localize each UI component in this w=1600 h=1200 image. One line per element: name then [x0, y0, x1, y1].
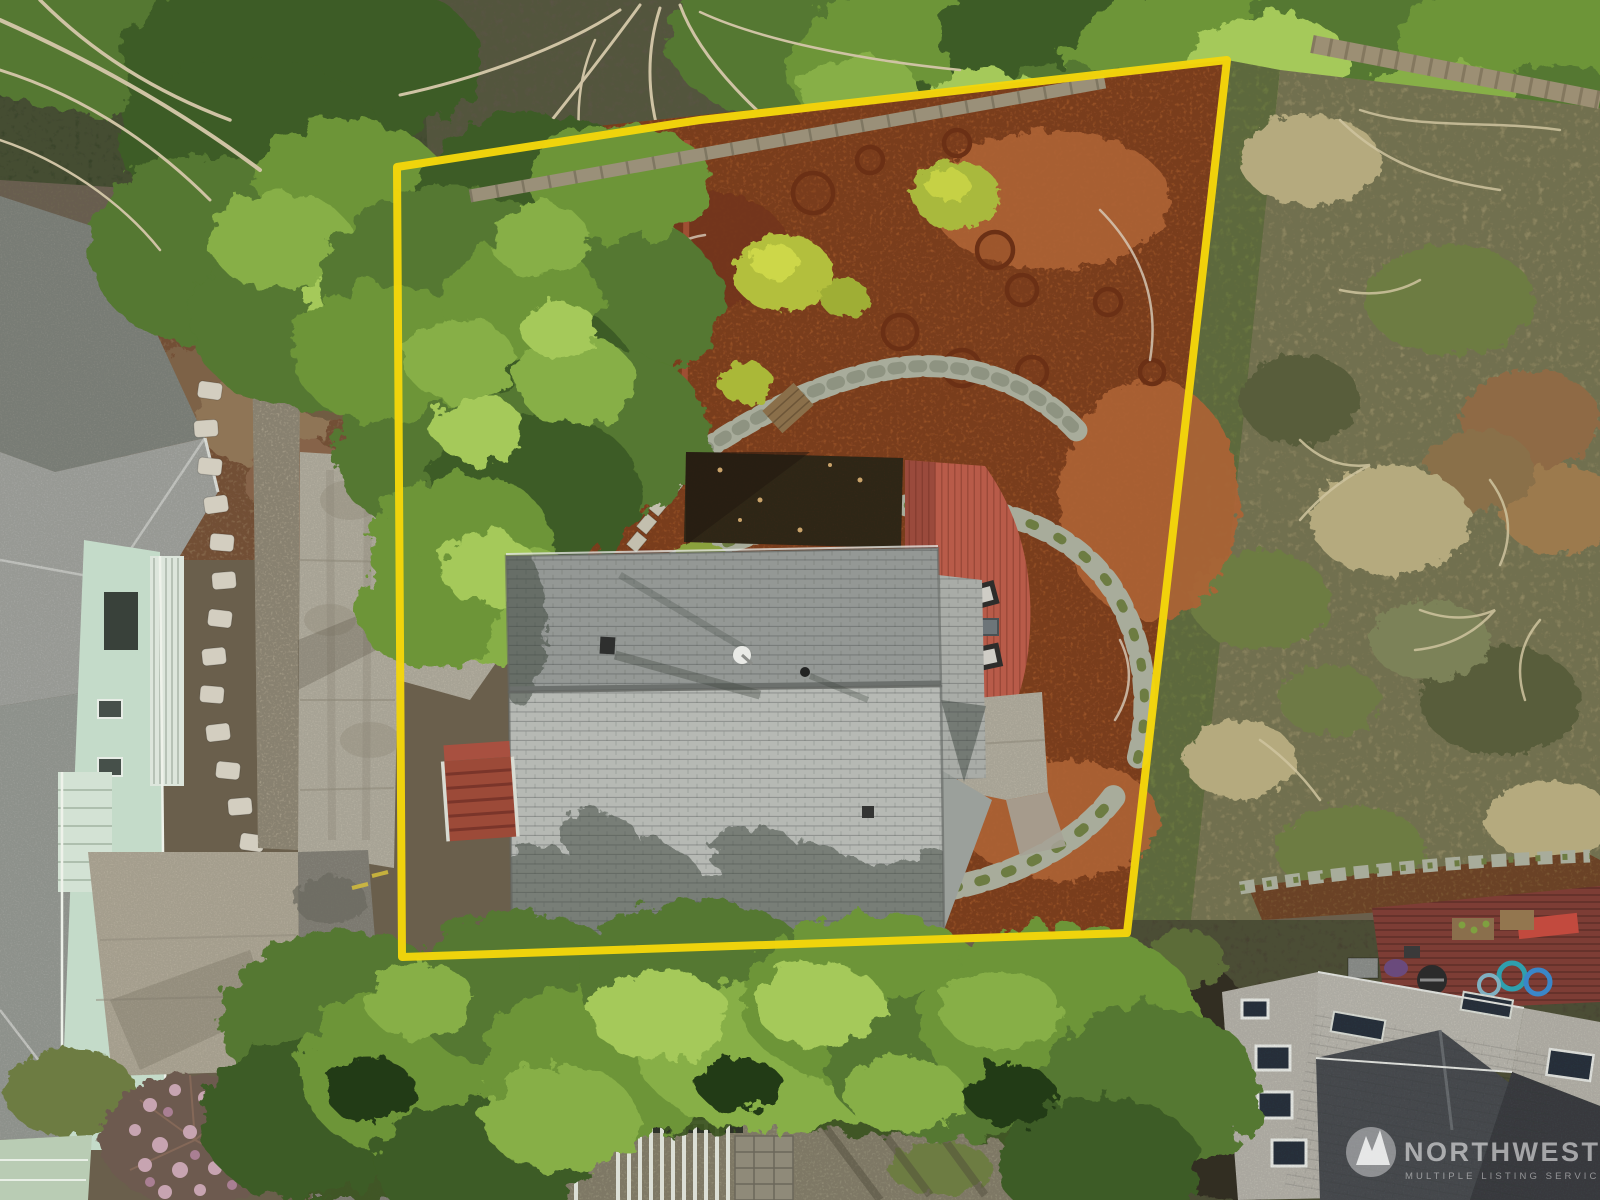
chimney	[1348, 958, 1378, 978]
aerial-photo-canvas: NORTHWEST MULTIPLE LISTING SERVICE	[0, 0, 1600, 1200]
stone-pillar	[735, 1136, 793, 1200]
watermark-tagline: MULTIPLE LISTING SERVICE	[1405, 1171, 1600, 1182]
aerial-photo: NORTHWEST MULTIPLE LISTING SERVICE	[0, 0, 1600, 1200]
red-side-stairs	[441, 741, 518, 842]
roof-vent-small	[862, 806, 874, 818]
skylight	[1546, 1049, 1593, 1081]
purple-toy	[1384, 959, 1408, 977]
watermark-brand: NORTHWEST	[1404, 1137, 1600, 1167]
roof-pipe	[800, 667, 810, 677]
roof-vent	[600, 637, 616, 655]
neighbor-wall-corner	[0, 1135, 92, 1200]
flat-roof-section	[684, 452, 903, 548]
dark-doorway	[104, 592, 138, 650]
main-roof	[475, 540, 995, 963]
